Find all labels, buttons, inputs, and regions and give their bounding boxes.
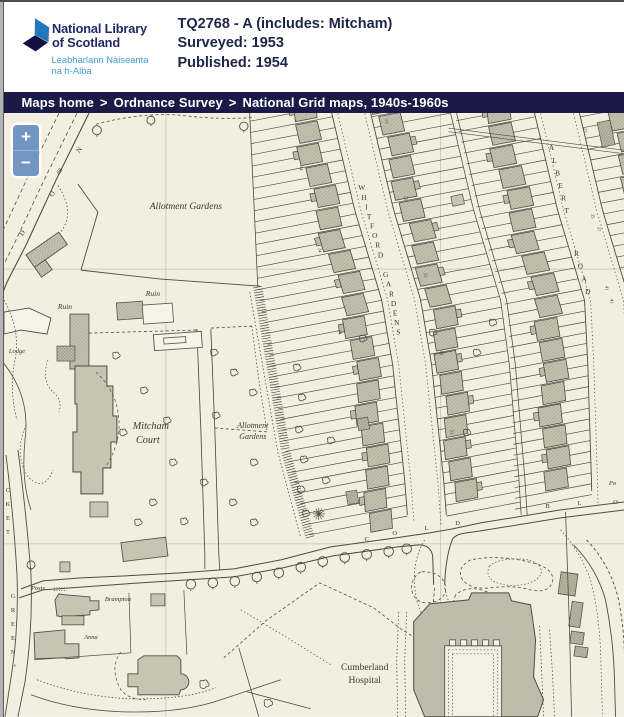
svg-text:Gardens: Gardens: [239, 432, 266, 441]
svg-text:Mitcham: Mitcham: [131, 421, 168, 432]
svg-text:Court: Court: [135, 435, 160, 446]
svg-text:W: W: [358, 183, 365, 192]
svg-text:O: O: [372, 231, 378, 240]
svg-text:R: R: [574, 249, 579, 258]
svg-text:Cumberland: Cumberland: [341, 662, 389, 673]
svg-text:K: K: [5, 501, 10, 508]
svg-text:D: D: [390, 299, 396, 308]
svg-text:Brampton: Brampton: [104, 596, 130, 603]
svg-text:G: G: [383, 270, 389, 279]
svg-text:34: 34: [337, 330, 342, 335]
svg-text:D: D: [455, 520, 460, 527]
svg-text:14: 14: [298, 166, 303, 171]
svg-text:R: R: [389, 289, 394, 298]
svg-text:Anna: Anna: [83, 634, 98, 641]
svg-text:N: N: [10, 649, 15, 656]
svg-text:B: B: [545, 503, 550, 510]
svg-text:13: 13: [384, 119, 389, 124]
svg-text:O: O: [613, 499, 618, 506]
svg-text:H: H: [361, 193, 367, 202]
svg-text:35: 35: [590, 214, 595, 219]
svg-text:A: A: [385, 280, 391, 289]
svg-text:C: C: [364, 536, 368, 543]
svg-text:N: N: [394, 318, 400, 327]
svg-text:T: T: [564, 206, 569, 215]
svg-text:A: A: [581, 274, 587, 283]
svg-text:L: L: [424, 525, 428, 532]
svg-text:43: 43: [609, 299, 614, 304]
svg-text:Ruin: Ruin: [144, 289, 159, 298]
svg-text:Posts: Posts: [29, 585, 45, 592]
svg-text:O: O: [392, 530, 397, 537]
svg-text:23: 23: [403, 196, 408, 201]
svg-text:Hospital: Hospital: [348, 675, 381, 686]
svg-text:T: T: [366, 212, 371, 221]
svg-text:Allotment: Allotment: [236, 421, 269, 430]
svg-text:O: O: [577, 262, 583, 271]
svg-text:27: 27: [582, 128, 587, 133]
svg-text:41: 41: [604, 286, 609, 291]
svg-text:T: T: [6, 529, 10, 536]
svg-text:A: A: [548, 143, 554, 152]
svg-text:+: +: [13, 663, 17, 670]
svg-text:S: S: [396, 328, 400, 337]
svg-text:R: R: [10, 607, 15, 614]
svg-text:F: F: [369, 222, 373, 231]
svg-text:R: R: [561, 194, 566, 203]
svg-text:37: 37: [596, 227, 601, 232]
svg-text:C: C: [5, 487, 9, 494]
svg-text:43: 43: [439, 351, 444, 356]
svg-text:E: E: [6, 515, 10, 522]
svg-text:B: B: [555, 168, 560, 177]
svg-text:D: D: [585, 287, 591, 296]
svg-text:Ruin: Ruin: [56, 302, 71, 311]
svg-text:Allotment Gardens: Allotment Gardens: [148, 201, 222, 212]
svg-text:D: D: [377, 250, 383, 259]
svg-text:E: E: [558, 181, 563, 190]
svg-text:R: R: [375, 241, 380, 250]
svg-text:E: E: [392, 308, 397, 317]
svg-text:L: L: [552, 156, 557, 165]
svg-text:G: G: [10, 593, 15, 600]
svg-text:53: 53: [449, 430, 454, 435]
svg-text:24: 24: [317, 248, 322, 253]
svg-text:E: E: [11, 621, 15, 628]
svg-text:Po: Po: [607, 480, 616, 487]
svg-text:L: L: [577, 500, 581, 507]
svg-text:E: E: [11, 635, 15, 642]
svg-text:33: 33: [423, 273, 428, 278]
